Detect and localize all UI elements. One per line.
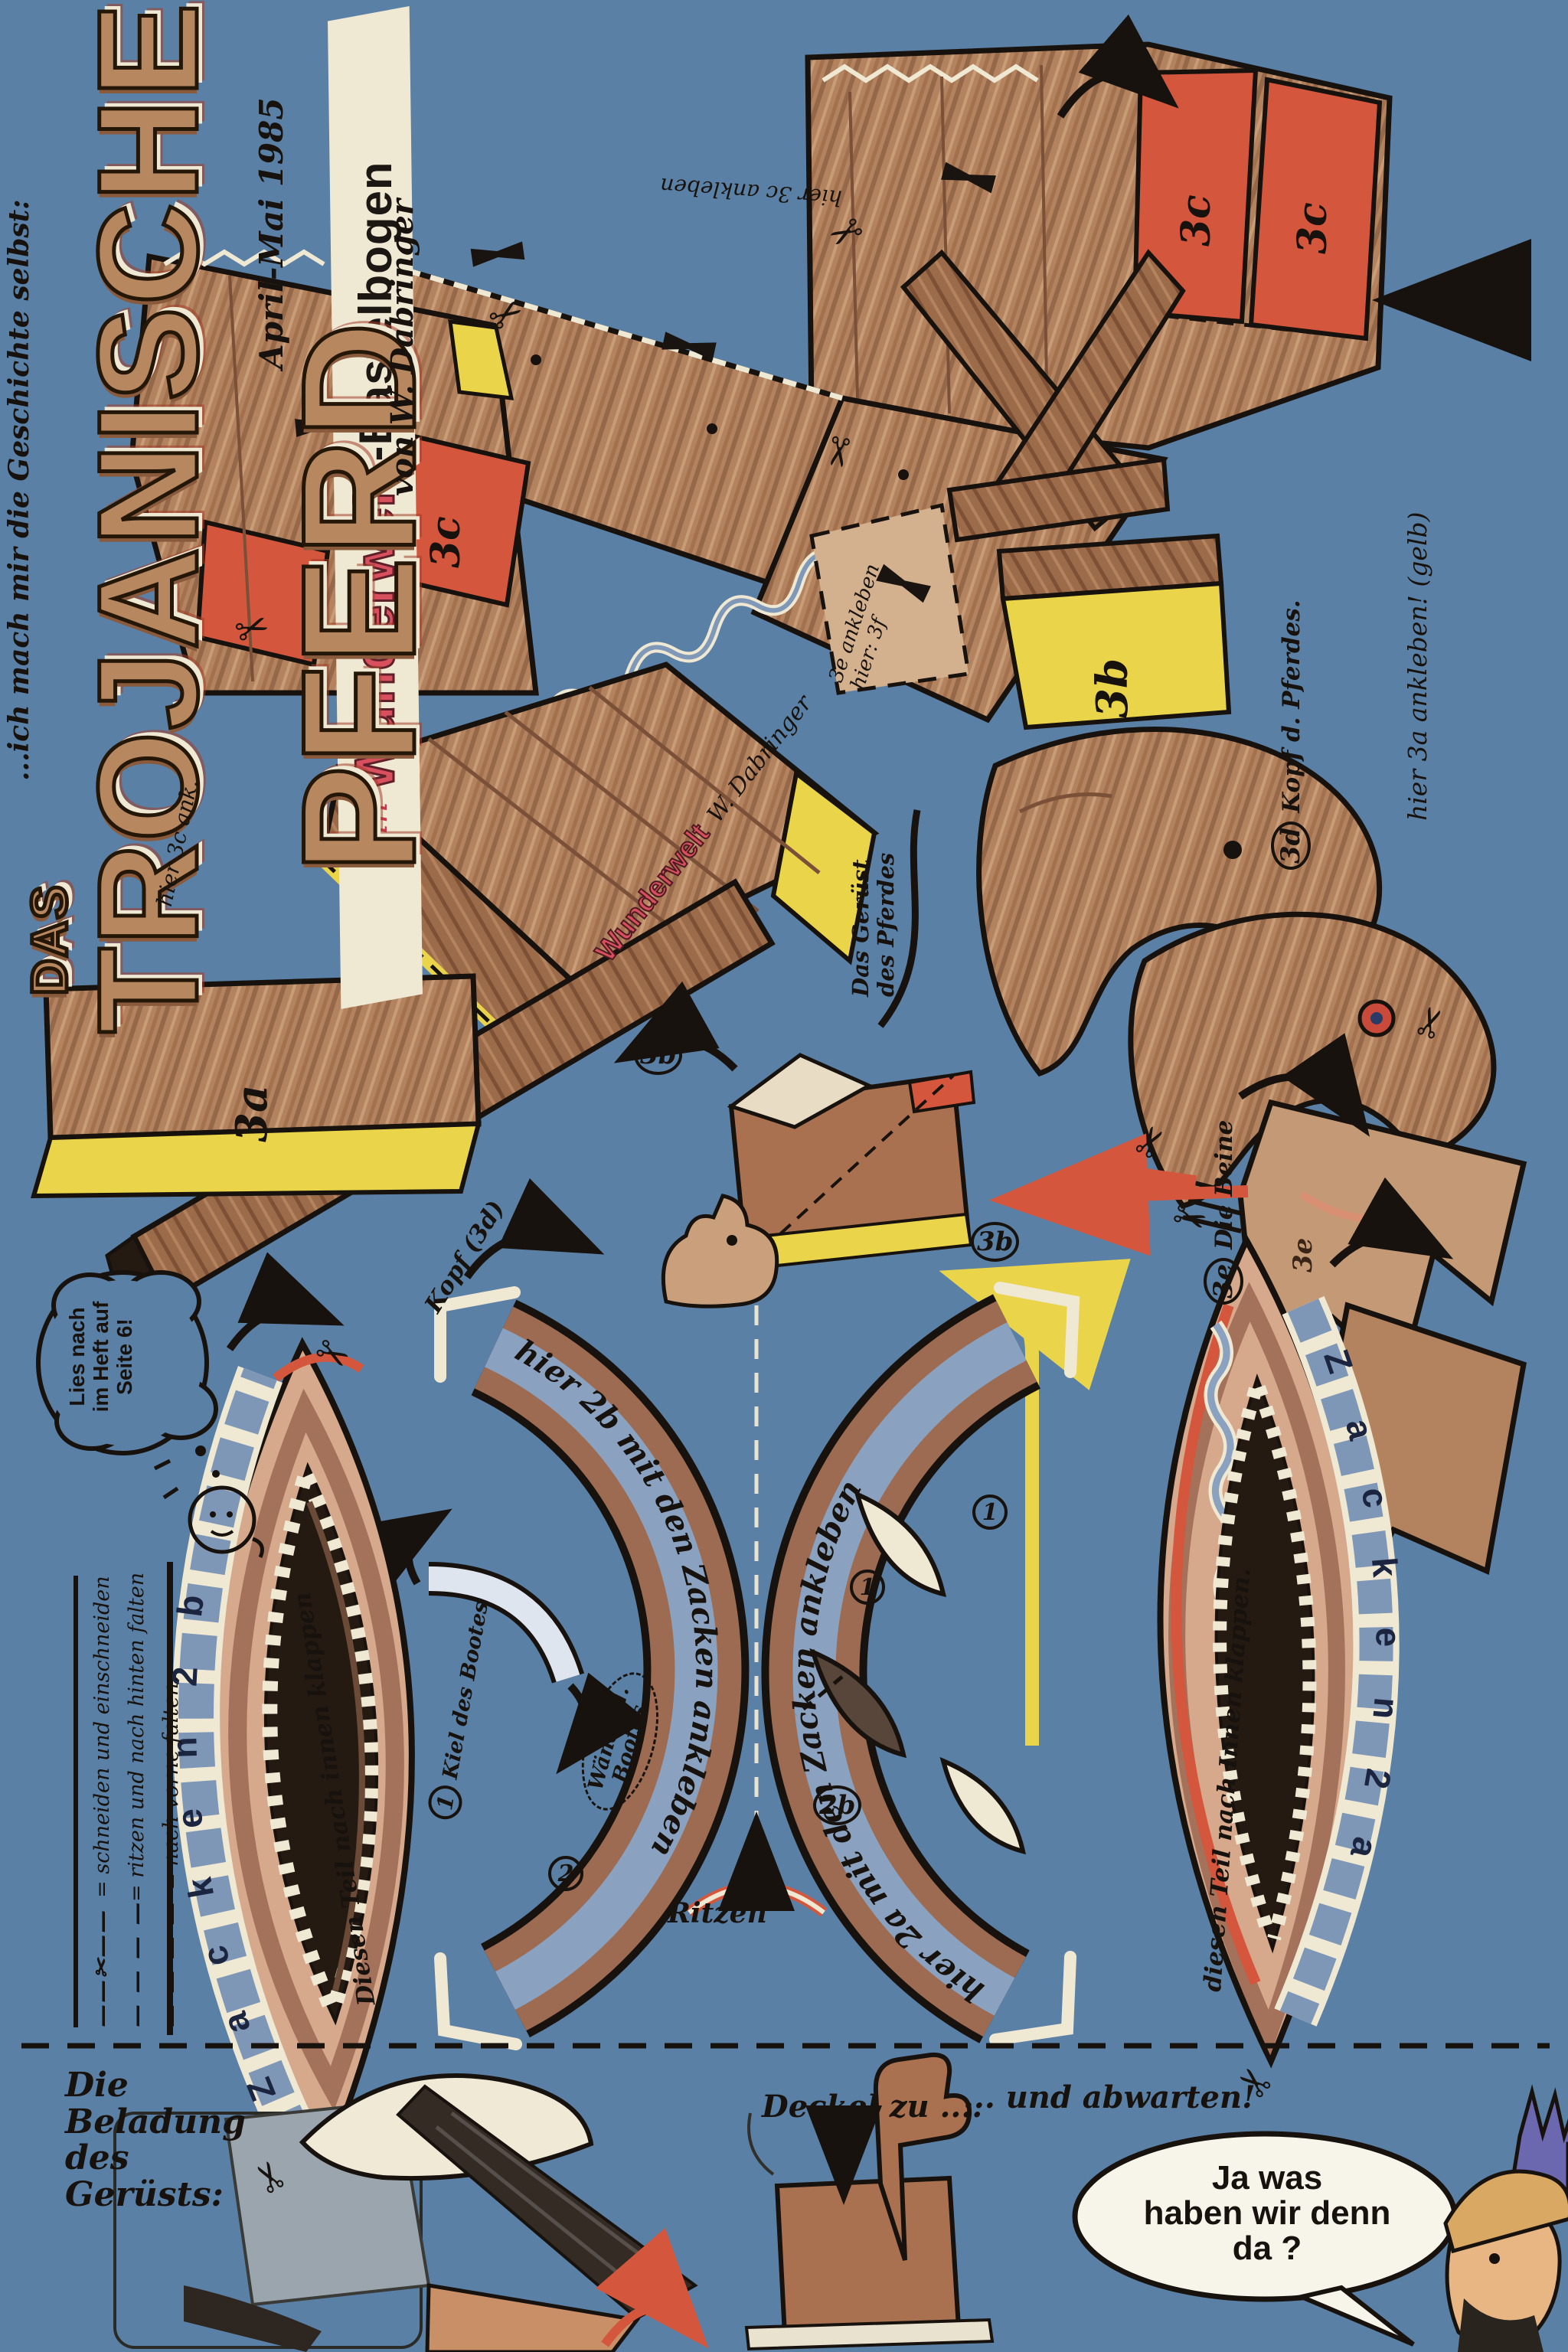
kopf-label-text: Kopf d. Pferdes. [1278, 599, 1305, 812]
piece-label-3a: 3a [227, 1043, 277, 1142]
beine-circled-3e: 3e [1204, 1258, 1243, 1305]
glue-note-3a-right: hier 3a ankleben! (gelb) [1403, 109, 1432, 821]
title-trojanische: TROJANISCHE [67, 38, 230, 1034]
geruest-line1: Das Gerüst [848, 859, 874, 997]
speech-line2: haben wir denn [1144, 2196, 1391, 2231]
author-note: von W. Dabringer [384, 52, 420, 496]
geruest-label: Das Gerüst des Pferdes [848, 805, 900, 997]
legend-dashdot-line-sample: —·—·—·— [158, 1901, 185, 2027]
kopf-circled-3d: 3d [1271, 822, 1311, 870]
circled-1-a: 1 [972, 1494, 1008, 1530]
legend-row-cut: ——✂—— = schneiden und einschneiden [89, 1576, 116, 2027]
bastelbogen-sheet: hier 2b mit den Zacken ankleben hier 2a … [0, 0, 1568, 2352]
waende-circled-2: 2 [548, 1856, 583, 1891]
legend-row-score-back: — — — — = ritzen und nach hinten falten [123, 1576, 150, 2027]
beladung-caption: Die Beladung des Gerüsts: [65, 2067, 318, 2213]
deckel-caption-right: ... und abwarten! [963, 2079, 1256, 2115]
kiel-circled-1: 1 [426, 1783, 465, 1822]
greek-soldier-head [1445, 2092, 1568, 2352]
bubble-line3: Seite 6! [113, 1318, 137, 1395]
beladung-line3: Gerüsts: [65, 2175, 224, 2214]
bubble-line1: Lies nach [66, 1307, 90, 1406]
circled-2b: 2b [813, 1785, 861, 1825]
assembly-box-diagram [663, 1055, 974, 1306]
piece-label-3c-3: 3c [423, 476, 469, 568]
circled-3b-right: 3b [971, 1222, 1019, 1262]
speech-line3: da ? [1233, 2231, 1302, 2266]
legend-row-fold-front: —·—·—·— = nach vorne falten. [158, 1576, 185, 2027]
legend-fold-label: = nach vorne falten. [159, 1676, 183, 1890]
thought-bubble-text: Lies nach im Heft auf Seite 6! [66, 1280, 136, 1433]
intro-script: ...ich mach mir die Geschichte selbst: [3, 8, 35, 781]
legend-cut-line-sample: ——✂—— [89, 1909, 116, 2027]
keel-small-piece [429, 1579, 568, 1678]
beine-label: 3e Die Beine [1204, 1075, 1243, 1305]
date-note: April-Mai 1985 [253, 32, 290, 369]
cut-fold-legend: ——✂—— = schneiden und einschneiden — — —… [73, 1576, 196, 2027]
circled-1-b: 1 [850, 1570, 885, 1605]
kopf-pferdes-label: 3d Kopf d. Pferdes. [1271, 579, 1311, 870]
legend-cut-label: = schneiden und einschneiden [90, 1576, 114, 1897]
ritzen-label: Ritzen [668, 1897, 767, 1929]
piece-label-3e-small: 3e [1288, 1204, 1318, 1272]
craft-sheet-artwork: hier 2b mit den Zacken ankleben hier 2a … [0, 0, 1568, 2352]
piece-label-3c-2: 3c [1289, 162, 1336, 254]
piece-label-3b: 3b [1087, 619, 1138, 718]
legend-score-label: = ritzen und nach hinten falten [125, 1573, 149, 1902]
beladung-line2: des [65, 2138, 129, 2177]
circled-3b-left: 3b [634, 1035, 682, 1075]
piece-label-3c-1: 3c [1173, 155, 1220, 247]
bubble-line2: im Heft auf [90, 1302, 113, 1413]
speech-bubble-text: Ja was haben wir denn da ? [1102, 2161, 1432, 2267]
speech-line1: Ja was [1212, 2161, 1322, 2196]
beine-label-text: Die Beine [1210, 1120, 1238, 1249]
legend-dash-line-sample: — — — — [123, 1913, 150, 2027]
geruest-line2: des Pferdes [873, 853, 899, 997]
beladung-line1: Die Beladung [65, 2066, 246, 2141]
deckel-caption-left: Deckel zu .... [762, 2089, 982, 2125]
